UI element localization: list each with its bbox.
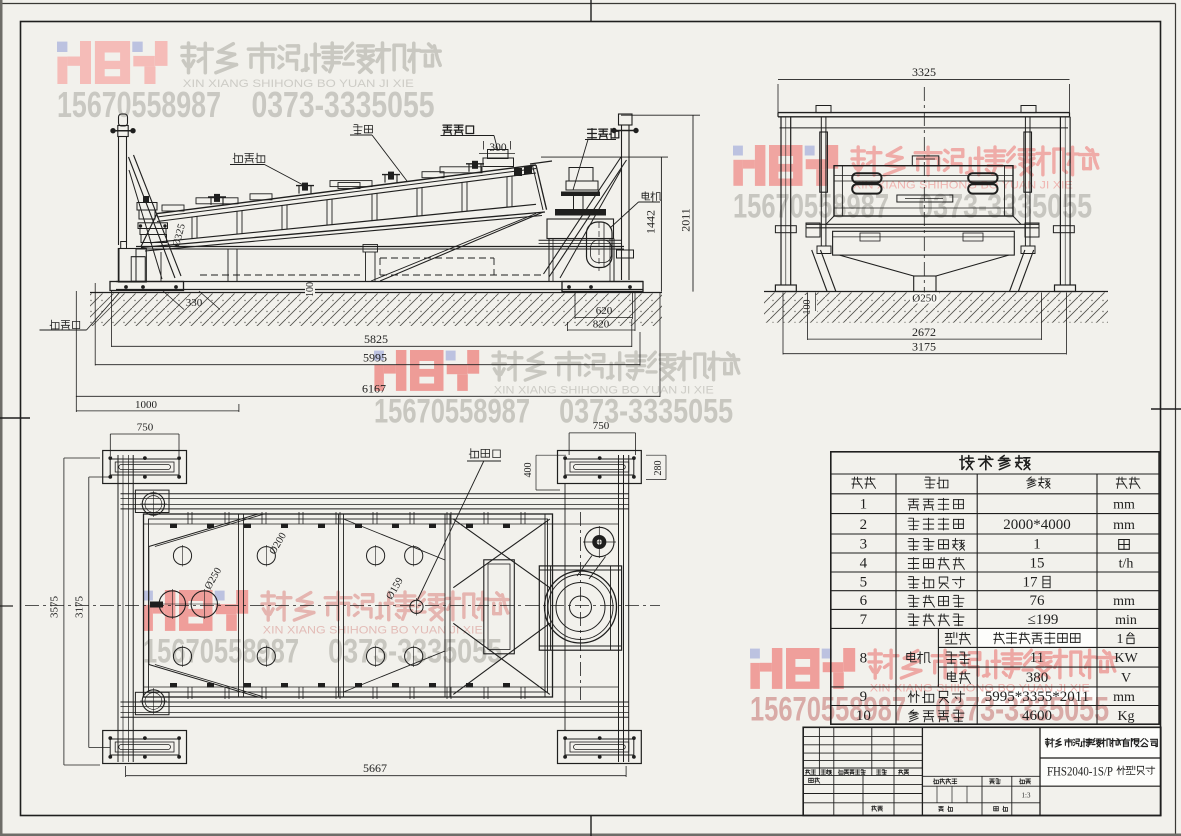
- svg-text:100: 100: [305, 282, 316, 297]
- svg-text:1:3: 1:3: [1022, 792, 1031, 800]
- svg-text:4: 4: [860, 556, 868, 572]
- svg-text:V: V: [1121, 671, 1131, 686]
- svg-text:mm: mm: [1113, 498, 1135, 513]
- svg-text:8: 8: [860, 651, 868, 667]
- svg-text:3325: 3325: [912, 65, 936, 79]
- svg-text:3: 3: [860, 537, 868, 553]
- svg-text:min: min: [1115, 613, 1137, 628]
- svg-text:1: 1: [1033, 537, 1041, 553]
- svg-text:15670558987: 15670558987: [143, 632, 299, 670]
- svg-text:KW: KW: [1114, 651, 1138, 666]
- svg-text:3575: 3575: [49, 596, 61, 619]
- svg-text:3175: 3175: [912, 340, 936, 354]
- svg-text:4600: 4600: [1022, 708, 1052, 724]
- svg-text:2: 2: [860, 517, 868, 533]
- svg-text:620: 620: [596, 305, 613, 317]
- svg-text:10: 10: [856, 708, 871, 724]
- svg-text:76: 76: [1030, 593, 1046, 609]
- svg-text:15670558987: 15670558987: [374, 392, 530, 430]
- svg-text:400: 400: [523, 463, 534, 478]
- svg-text:11: 11: [1030, 650, 1044, 666]
- svg-text:1: 1: [1117, 632, 1124, 647]
- svg-text:mm: mm: [1113, 594, 1135, 609]
- svg-text:15: 15: [1030, 556, 1045, 572]
- svg-text:15670558987: 15670558987: [750, 690, 906, 728]
- svg-text:15670558987: 15670558987: [57, 84, 221, 125]
- svg-text:7: 7: [860, 612, 868, 628]
- svg-text:330: 330: [186, 297, 203, 309]
- svg-text:1000: 1000: [135, 399, 158, 411]
- svg-text:2672: 2672: [912, 325, 936, 339]
- svg-text:0373-3335055: 0373-3335055: [328, 632, 502, 670]
- svg-text:6167: 6167: [362, 382, 386, 396]
- svg-text:t/h: t/h: [1119, 557, 1134, 572]
- svg-text:2011: 2011: [679, 208, 693, 232]
- svg-text:0373-3335055: 0373-3335055: [559, 392, 733, 430]
- svg-text:5995*3355*2011: 5995*3355*2011: [985, 689, 1089, 705]
- svg-text:0373-3335055: 0373-3335055: [252, 84, 435, 125]
- svg-text:1442: 1442: [644, 210, 658, 234]
- svg-text:0373-3335055: 0373-3335055: [918, 187, 1092, 225]
- svg-text:≤199: ≤199: [1028, 612, 1059, 628]
- svg-text:5: 5: [860, 574, 868, 590]
- svg-text:280: 280: [653, 461, 664, 476]
- svg-text:3175: 3175: [74, 596, 86, 619]
- svg-text:6: 6: [860, 593, 868, 609]
- svg-text:Kg: Kg: [1117, 709, 1134, 724]
- svg-text:mm: mm: [1113, 690, 1135, 705]
- svg-text:1: 1: [860, 497, 868, 513]
- svg-text:mm: mm: [1113, 518, 1135, 533]
- svg-text:5995: 5995: [363, 351, 387, 365]
- svg-text:380: 380: [1026, 670, 1049, 686]
- svg-text:9: 9: [860, 689, 868, 705]
- svg-text:5667: 5667: [363, 761, 387, 775]
- svg-text:750: 750: [593, 420, 610, 432]
- svg-text:Ø250: Ø250: [912, 293, 937, 305]
- svg-text:5825: 5825: [364, 332, 388, 346]
- svg-text:820: 820: [593, 319, 610, 331]
- svg-text:FHS2040-1S/P: FHS2040-1S/P: [1047, 765, 1113, 779]
- svg-text:300: 300: [489, 142, 507, 154]
- svg-text:2000*4000: 2000*4000: [1003, 517, 1071, 533]
- svg-text:17: 17: [1023, 574, 1039, 590]
- svg-text:750: 750: [137, 422, 154, 434]
